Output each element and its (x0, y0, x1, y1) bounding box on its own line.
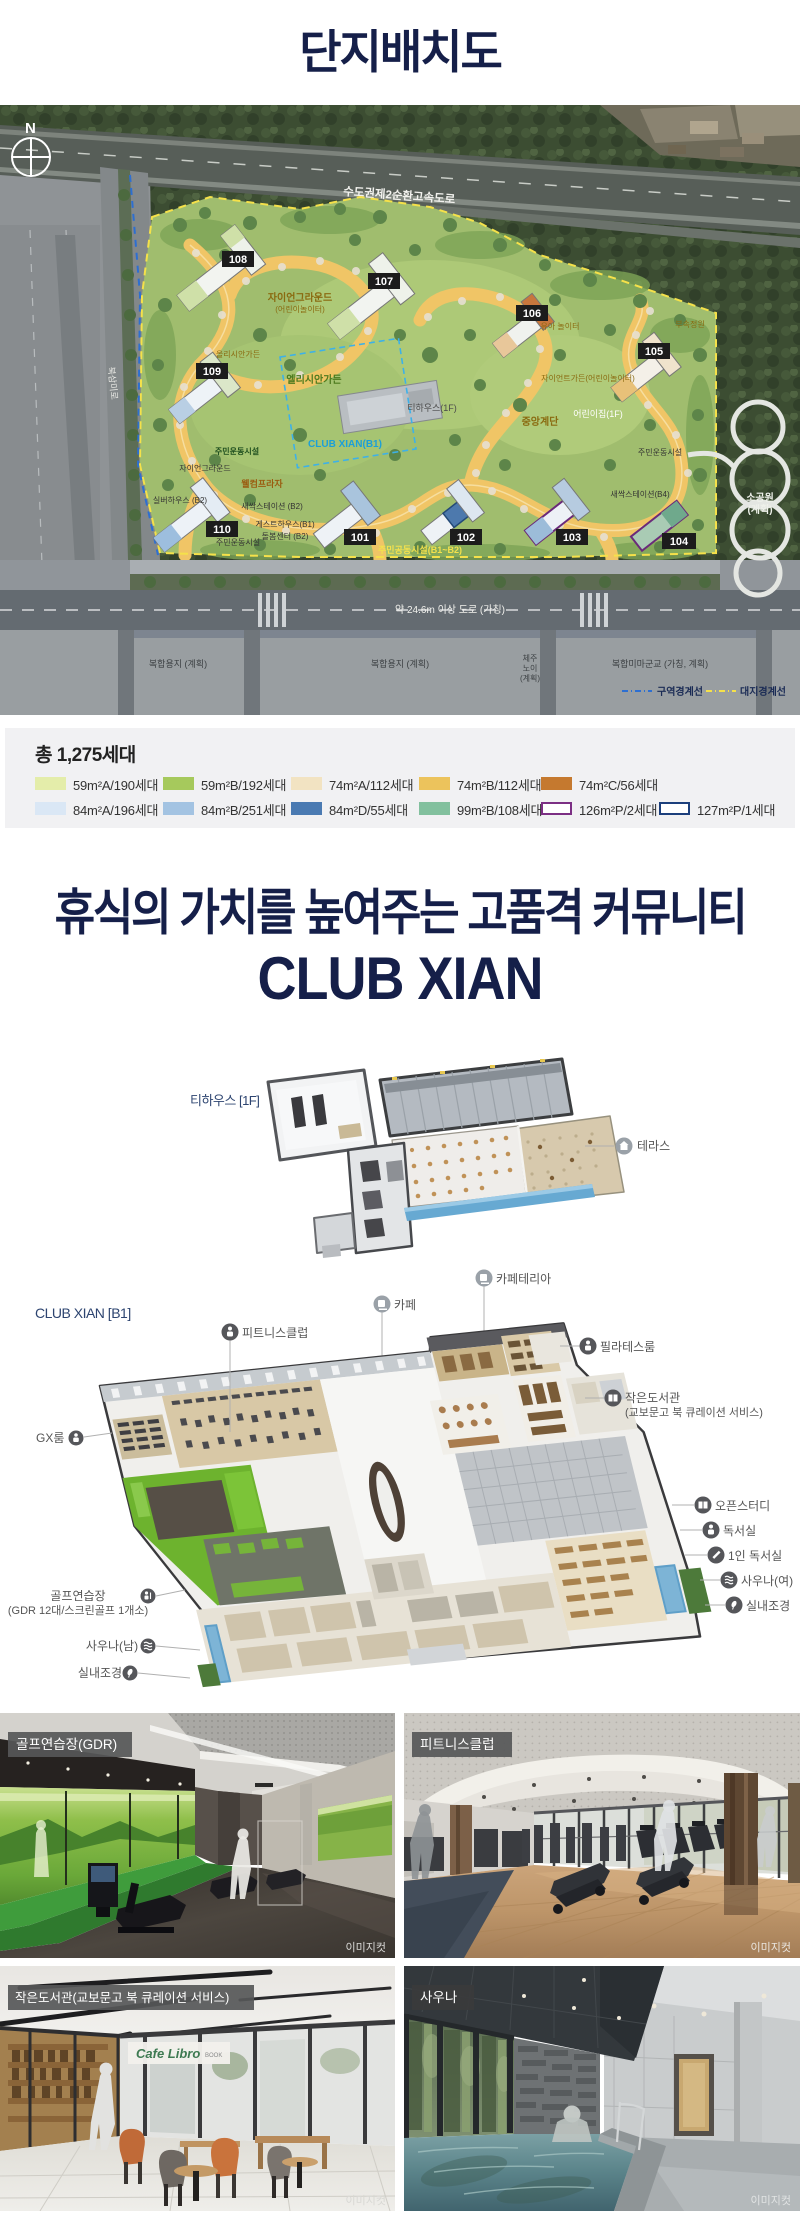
svg-text:실내조경: 실내조경 (746, 1599, 790, 1613)
svg-text:GX룸: GX룸 (36, 1431, 64, 1445)
svg-text:주민운동시설: 주민운동시설 (215, 446, 259, 456)
svg-text:사우나(여): 사우나(여) (741, 1574, 793, 1588)
svg-text:103: 103 (563, 532, 581, 544)
svg-text:CLUB XIAN [B1]: CLUB XIAN [B1] (35, 1305, 131, 1321)
svg-text:복합용지 (계획): 복합용지 (계획) (371, 658, 429, 669)
svg-text:게스트하우스(B1): 게스트하우스(B1) (255, 519, 315, 529)
svg-text:이미지컷: 이미지컷 (346, 2194, 386, 2207)
svg-text:106: 106 (523, 308, 541, 320)
svg-text:104: 104 (670, 536, 689, 548)
svg-text:108: 108 (229, 254, 247, 266)
svg-text:Cafe Libro: Cafe Libro (136, 2046, 200, 2061)
svg-text:주민공동시설(B1~B2): 주민공동시설(B1~B2) (378, 544, 462, 555)
svg-text:새싹스테이션 (B2): 새싹스테이션 (B2) (241, 501, 303, 511)
svg-text:새싹스테이션(B4): 새싹스테이션(B4) (610, 489, 670, 499)
svg-text:주민운동시설: 주민운동시설 (638, 447, 682, 457)
svg-text:대지경계선: 대지경계선 (740, 685, 786, 698)
svg-text:107: 107 (375, 276, 393, 288)
svg-text:오픈스터디: 오픈스터디 (715, 1499, 770, 1513)
svg-text:엘리시안가든: 엘리시안가든 (286, 373, 341, 386)
svg-text:어린이집(1F): 어린이집(1F) (573, 408, 623, 419)
svg-text:작은도서관(교보문고 북 큐레이션 서비스): 작은도서관(교보문고 북 큐레이션 서비스) (15, 1991, 229, 2005)
svg-text:자이언그라운드: 자이언그라운드 (179, 463, 231, 473)
svg-text:골프연습장: 골프연습장 (50, 1589, 105, 1603)
svg-text:자이언그라운드: 자이언그라운드 (268, 291, 332, 304)
svg-text:실버하우스 (B2): 실버하우스 (B2) (153, 495, 207, 505)
svg-text:티하우스(1F): 티하우스(1F) (407, 403, 457, 413)
svg-text:체주: 체주 (523, 653, 538, 663)
svg-text:카페: 카페 (394, 1298, 416, 1312)
svg-text:돌봄센터 (B2): 돌봄센터 (B2) (262, 531, 309, 541)
svg-text:피트니스클럽: 피트니스클럽 (420, 1737, 495, 1752)
svg-text:피트니스클럽: 피트니스클럽 (242, 1326, 308, 1340)
svg-text:테라스: 테라스 (637, 1139, 670, 1153)
svg-text:주민운동시설: 주민운동시설 (216, 537, 260, 547)
svg-text:복합용지 (계획): 복합용지 (계획) (149, 658, 207, 669)
svg-text:이미지컷: 이미지컷 (346, 1941, 386, 1954)
svg-text:노이: 노이 (523, 663, 538, 673)
svg-text:CLUB XIAN(B1): CLUB XIAN(B1) (308, 439, 382, 450)
svg-text:올리시안가든: 올리시안가든 (216, 349, 260, 359)
svg-text:이미지컷: 이미지컷 (751, 1941, 791, 1954)
svg-text:(계획): (계획) (520, 673, 540, 683)
svg-text:카페테리아: 카페테리아 (496, 1272, 551, 1286)
svg-text:필라테스룸: 필라테스룸 (600, 1340, 655, 1354)
svg-text:105: 105 (645, 346, 663, 358)
svg-text:유아 놀이터: 유아 놀이터 (540, 321, 579, 331)
svg-text:소공원: 소공원 (746, 491, 774, 504)
svg-text:102: 102 (457, 532, 475, 544)
svg-text:101: 101 (351, 532, 369, 544)
svg-text:자이언트가든(어린이놀이터): 자이언트가든(어린이놀이터) (541, 373, 635, 383)
svg-text:110: 110 (213, 524, 231, 536)
svg-text:(계획): (계획) (747, 503, 772, 516)
svg-text:(교보문고 북 큐레이션 서비스): (교보문고 북 큐레이션 서비스) (625, 1406, 763, 1419)
svg-text:N: N (25, 120, 36, 137)
svg-text:구역경계선: 구역경계선 (657, 685, 703, 698)
svg-text:1인 독서실: 1인 독서실 (728, 1549, 782, 1563)
svg-text:사우나(남): 사우나(남) (86, 1639, 138, 1653)
svg-text:골프연습장(GDR): 골프연습장(GDR) (16, 1737, 117, 1752)
svg-text:BOOK: BOOK (205, 2053, 222, 2059)
svg-text:부속정원: 부속정원 (675, 319, 704, 329)
svg-text:복합미마군교 (가칭, 계획): 복합미마군교 (가칭, 계획) (612, 658, 708, 669)
svg-text:독서실: 독서실 (723, 1524, 756, 1538)
svg-text:(어린이놀이터): (어린이놀이터) (275, 304, 325, 314)
svg-text:중앙계단: 중앙계단 (522, 415, 560, 428)
svg-text:이미지컷: 이미지컷 (751, 2194, 791, 2207)
svg-text:작은도서관: 작은도서관 (625, 1391, 680, 1405)
svg-text:109: 109 (203, 366, 221, 378)
svg-text:티하우스 [1F]: 티하우스 [1F] (190, 1093, 259, 1108)
svg-text:웰컴프라자: 웰컴프라자 (241, 478, 283, 489)
svg-text:사우나: 사우나 (420, 1990, 457, 2005)
svg-text:약 24.6m 이상 도로 (가칭): 약 24.6m 이상 도로 (가칭) (395, 604, 505, 616)
svg-text:실내조경: 실내조경 (78, 1666, 122, 1680)
svg-text:(GDR 12대/스크린골프 1개소): (GDR 12대/스크린골프 1개소) (8, 1604, 148, 1617)
